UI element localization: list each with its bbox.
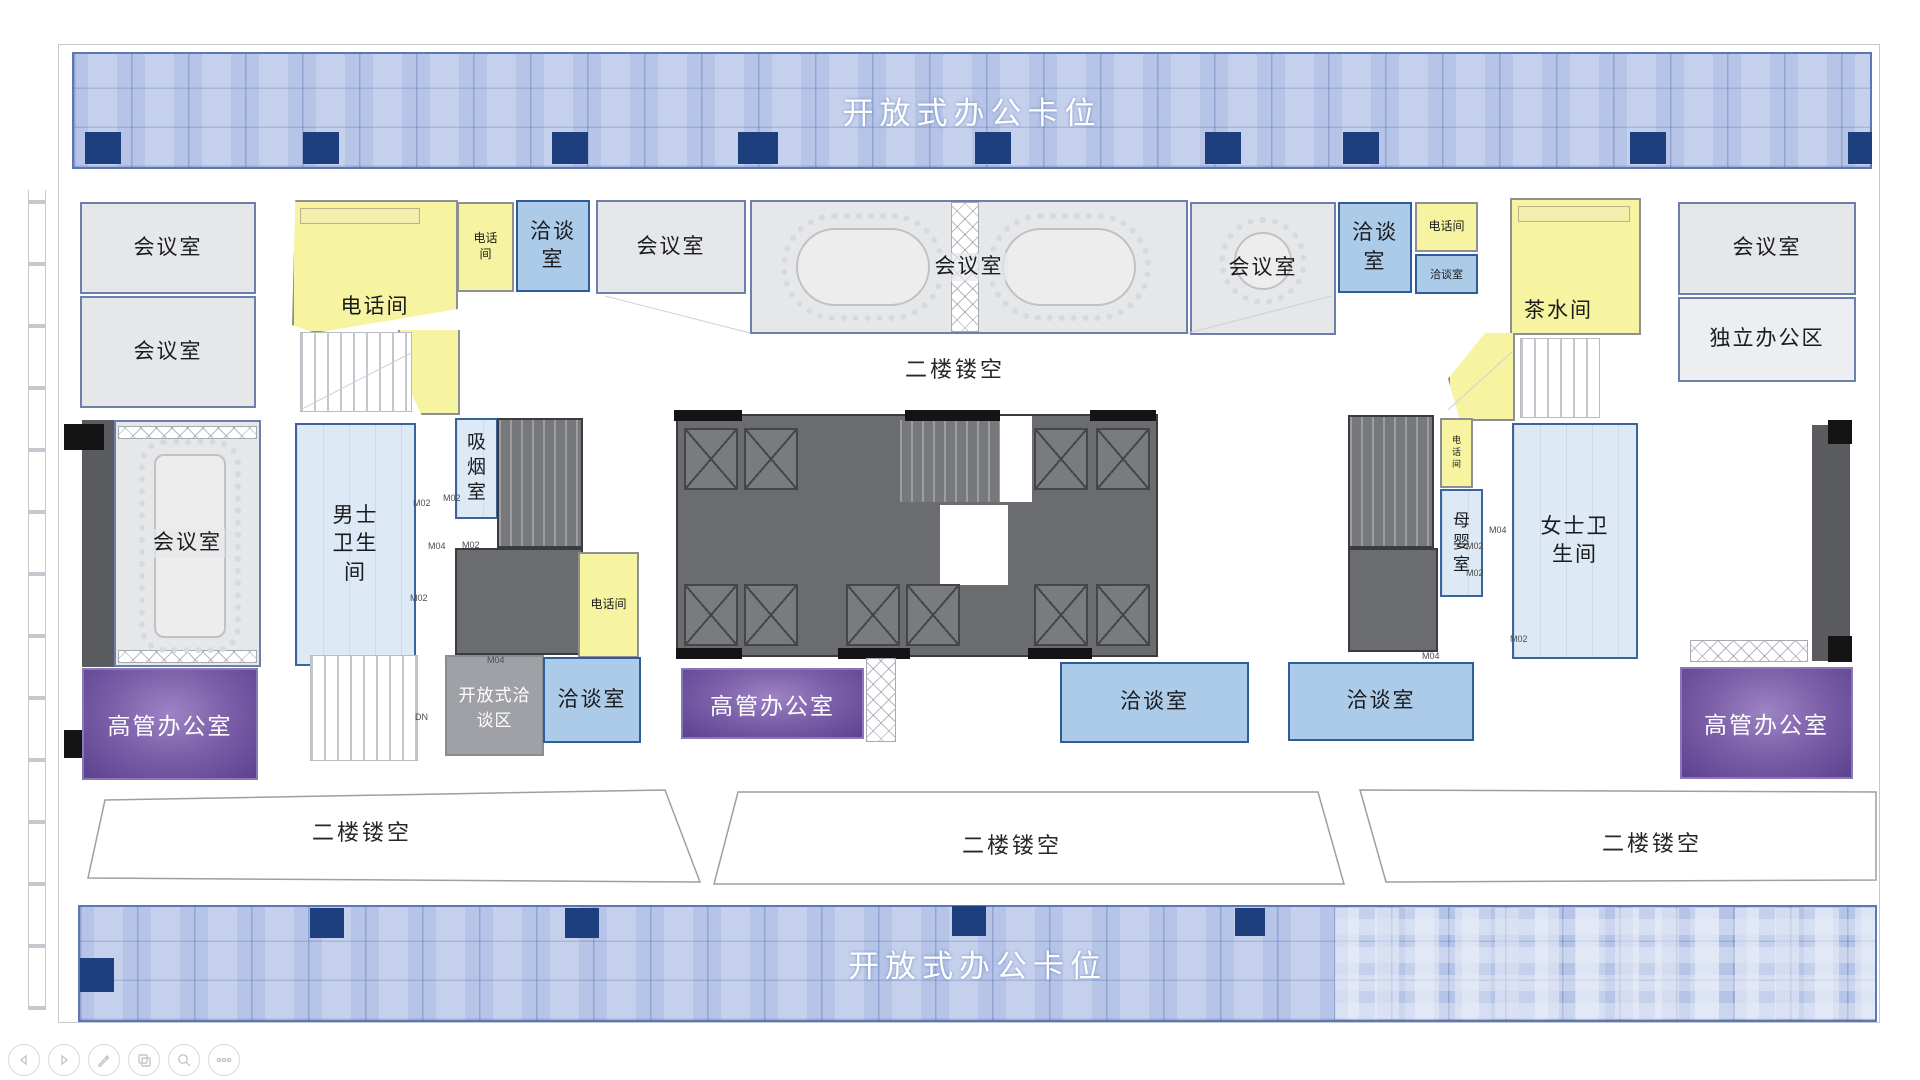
void-label-top: 二楼镂空 [905, 352, 1005, 384]
decor-pantry-counter [300, 208, 420, 224]
room-label: 会议室 [134, 338, 203, 366]
meeting-room[interactable]: 会议室 [80, 296, 256, 408]
smoking-room[interactable]: 吸烟室 [455, 418, 498, 519]
negotiation-room[interactable]: 洽谈室 [1338, 202, 1412, 293]
room-label: 高管办公室 [710, 687, 835, 721]
room-label: 会议室 [134, 234, 203, 262]
elevator [1034, 584, 1088, 646]
room-label: 会议室 [150, 529, 225, 557]
elevator [744, 584, 798, 646]
viewer-toolbar [8, 1044, 240, 1076]
decor-core-gap [940, 505, 1008, 585]
decor-cabinet [303, 132, 339, 164]
open-office-band-top: 开放式办公卡位 [72, 52, 1872, 169]
door-tag: M02 [1466, 541, 1484, 551]
stairwell [497, 418, 583, 548]
decor-wall-accent [1090, 410, 1156, 421]
phone-booth[interactable]: 电话间 [1415, 202, 1478, 252]
room-label: 高管办公室 [108, 707, 233, 741]
door-tag: M02 [462, 540, 480, 550]
void-label-bottom-center: 二楼镂空 [962, 828, 1062, 860]
copy-button[interactable] [128, 1044, 160, 1076]
void-label-bottom-right: 二楼镂空 [1602, 826, 1702, 858]
decor-wall-accent [674, 410, 742, 421]
decor-wall-strip [82, 420, 114, 667]
negotiation-room[interactable]: 洽谈室 [1288, 662, 1474, 741]
conference-table [1002, 228, 1136, 306]
room-label: 电话间 [590, 597, 626, 613]
decor-cabinet [565, 908, 599, 938]
decor-cabinet [1205, 132, 1241, 164]
elevator [1034, 428, 1088, 490]
decor-pantry-counter [1518, 206, 1630, 222]
meeting-room[interactable]: 会议室 [114, 420, 261, 667]
elevator [684, 584, 738, 646]
room-label: 独立办公区 [1710, 325, 1825, 353]
decor-desk-cluster [1335, 908, 1875, 1019]
executive-office[interactable]: 高管办公室 [1680, 667, 1853, 779]
decor-cabinet [952, 906, 986, 936]
womens-restroom[interactable]: 女士卫生间 [1512, 423, 1638, 659]
door-tag: M02 [1466, 568, 1484, 578]
door-tag: M04 [428, 541, 446, 551]
executive-office[interactable]: 高管办公室 [681, 668, 864, 739]
executive-office[interactable]: 高管办公室 [82, 668, 258, 780]
room-label: 女士卫生间 [1530, 513, 1620, 570]
edit-pencil-icon [96, 1052, 112, 1068]
mens-restroom[interactable]: 男士卫生间 [295, 423, 416, 666]
decor-wall-accent [64, 424, 104, 450]
decor-cabinet [1343, 132, 1379, 164]
open-negotiation-area[interactable]: 开放式洽谈区 [445, 655, 544, 756]
room-label: 电话间 [1428, 219, 1464, 235]
meeting-room[interactable]: 会议室 [1678, 202, 1856, 295]
room-label: 会议室 [637, 233, 706, 261]
elevator [684, 428, 738, 490]
back-button[interactable] [8, 1044, 40, 1076]
decor-truss [118, 426, 257, 439]
elevator [846, 584, 900, 646]
zoom-search-icon [176, 1052, 192, 1068]
decor-cabinet [1235, 908, 1265, 936]
decor-cabinet [552, 132, 588, 164]
door-tag: M02 [410, 593, 428, 603]
room-label: 会议室 [931, 253, 1008, 281]
meeting-room[interactable]: 会议室 [596, 200, 746, 294]
phone-booth[interactable]: 电话间 [1440, 418, 1473, 488]
decor-cabinet [85, 132, 121, 164]
room-label: 洽谈室 [558, 686, 627, 714]
room-label: 吸烟室 [466, 431, 488, 505]
decor-cabinet [80, 958, 114, 992]
decor-wall-accent [1828, 636, 1852, 662]
door-tag: M04 [487, 655, 505, 665]
room-label: 高管办公室 [1704, 706, 1829, 740]
decor-wall-strip [1812, 425, 1850, 661]
decor-cabinet [1848, 132, 1872, 164]
decor-wall-accent [676, 648, 742, 659]
meeting-room[interactable]: 会议室 [1190, 202, 1336, 335]
decor-truss [118, 650, 257, 663]
room-label: 电话间 [1451, 435, 1461, 470]
void-label-bottom-left: 二楼镂空 [312, 815, 412, 847]
more-ellipsis-icon [215, 1052, 233, 1068]
decor-cabinet [310, 908, 344, 938]
door-tag: M04 [1489, 525, 1507, 535]
room-label: 会议室 [1229, 254, 1298, 282]
door-tag: M02 [443, 493, 461, 503]
open-stair [300, 332, 412, 412]
decor-cabinet [738, 132, 778, 164]
core-stair [900, 420, 1000, 502]
decor-wall-accent [905, 410, 1000, 421]
phone-booth[interactable]: 电话间 [457, 202, 514, 292]
room-label: 开放式洽谈区 [458, 681, 531, 731]
door-tag: M02 [413, 498, 431, 508]
decor-cabinet [1630, 132, 1666, 164]
decor-truss [866, 658, 896, 742]
forward-icon [56, 1052, 72, 1068]
decor-wall-accent [1828, 420, 1852, 444]
stairwell [1348, 415, 1434, 548]
negotiation-room[interactable]: 洽谈室 [516, 200, 590, 292]
room-label: 洽谈室 [1351, 219, 1399, 276]
elevator [1096, 584, 1150, 646]
negotiation-room[interactable]: 洽谈室 [543, 657, 641, 743]
more-button[interactable] [208, 1044, 240, 1076]
private-office-area[interactable]: 独立办公区 [1678, 297, 1856, 382]
decor-truss [1690, 640, 1808, 662]
left-window-mullions [28, 190, 46, 1010]
floor-plan-canvas: 开放式办公卡位 开放式办公卡位 会议室 会议室 电话间 电话间 洽谈室 会议室 … [0, 0, 1920, 1080]
negotiation-room-small[interactable]: 洽谈室 [1415, 254, 1478, 294]
door-tag: M04 [1422, 651, 1440, 661]
elevator [906, 584, 960, 646]
stair-lobby [455, 548, 583, 655]
room-label: 男士卫生间 [322, 502, 389, 587]
decor-wall-accent [1028, 648, 1092, 659]
decor-cabinet [975, 132, 1011, 164]
conference-table [796, 228, 930, 306]
open-stair [1520, 338, 1600, 418]
room-label: 洽谈室 [1120, 688, 1189, 716]
open-stair [310, 655, 418, 761]
room-label: 电话间 [472, 231, 500, 262]
room-label: 会议室 [1733, 234, 1802, 262]
door-tag: DN [415, 712, 428, 722]
room-label: 洽谈室 [529, 218, 577, 275]
meeting-room[interactable]: 会议室 [80, 202, 256, 294]
open-office-band-top-label: 开放式办公卡位 [843, 88, 1102, 133]
forward-button[interactable] [48, 1044, 80, 1076]
edit-button[interactable] [88, 1044, 120, 1076]
back-icon [16, 1052, 32, 1068]
phone-booth[interactable]: 电话间 [578, 552, 639, 658]
door-tag: M02 [1510, 634, 1528, 644]
open-office-band-bottom-label: 开放式办公卡位 [848, 941, 1107, 986]
room-label: 洽谈室 [1347, 687, 1416, 715]
copy-layers-icon [136, 1052, 152, 1068]
zoom-button[interactable] [168, 1044, 200, 1076]
room-label: 洽谈室 [1430, 266, 1463, 282]
stair-lobby [1348, 548, 1438, 652]
elevator [1096, 428, 1150, 490]
elevator [744, 428, 798, 490]
negotiation-room[interactable]: 洽谈室 [1060, 662, 1249, 743]
room-label: 茶水间 [1512, 297, 1593, 333]
decor-core-gap [1000, 416, 1032, 502]
